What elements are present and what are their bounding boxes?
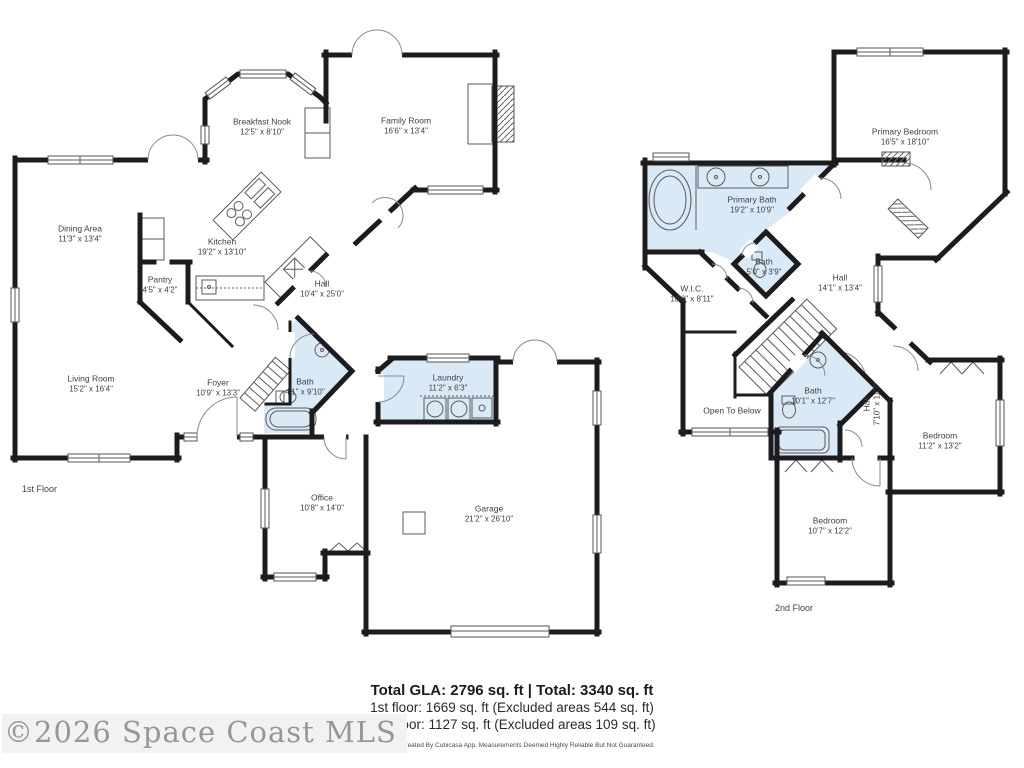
room-label-bath-1f: Bath 4'1" x 9'10" (285, 376, 324, 397)
hatched-window-icon (882, 152, 910, 166)
room-label-breakfast-nook: Breakfast Nook 12'5" x 8'10" (233, 116, 291, 137)
room-label-family-room: Family Room 16'6" x 13'4" (381, 115, 431, 136)
total-gla-line: Total GLA: 2796 sq. ft | Total: 3340 sq.… (0, 681, 1024, 700)
room-label-garage: Garage 21'2" x 26'10" (465, 503, 513, 524)
room-label-primary-bedroom: Primary Bedroom 16'5" x 18'10" (872, 126, 938, 147)
room-label-hall-1f: Hall 10'4" x 25'0" (300, 278, 344, 299)
room-label-office: Office 10'8" x 14'0" (300, 492, 344, 513)
kitchen-island-icon (213, 172, 281, 240)
first-floor-tag: 1st Floor (22, 484, 57, 494)
bifold-door-icon (940, 362, 984, 374)
water-heater-icon (403, 512, 425, 534)
floorplan-page: Breakfast Nook 12'5" x 8'10" Family Room… (0, 0, 1024, 768)
bifold-door-icon (785, 460, 833, 472)
room-label-bath-2f: Bath 10'1" x 12'7" (791, 385, 835, 406)
first-floor-plan (11, 30, 601, 637)
window-icon (653, 48, 1004, 585)
mls-watermark: ©2026 Space Coast MLS (2, 714, 407, 753)
room-label-bedroom-1: Bedroom 11'2" x 13'2" (918, 430, 961, 451)
room-label-bedroom-2: Bedroom 10'7" x 12'2" (808, 515, 852, 536)
room-label-dining-area: Dining Area 11'3" x 13'4" (58, 223, 102, 244)
room-label-living-room: Living Room 15'2" x 16'4" (67, 373, 114, 394)
room-label-open-to-below: Open To Below (703, 405, 761, 416)
garage-door-icon (451, 626, 549, 637)
room-label-primary-bath: Primary Bath 19'2" x 10'9" (727, 194, 776, 215)
room-label-hall-2f: Hall 14'1" x 13'4" (818, 272, 862, 293)
room-label-bath-small: Bath 5'0" x 3'9" (747, 256, 782, 277)
hatched-window-icon (888, 199, 928, 238)
room-label-kitchen: Kitchen 19'2" x 13'10" (198, 236, 246, 257)
second-floor-tag: 2nd Floor (775, 603, 813, 613)
room-label-foyer: Foyer 10'9" x 13'3" (196, 377, 240, 398)
fireplace-icon (468, 84, 494, 144)
second-floor-plan (643, 48, 1007, 585)
room-label-wic: W.I.C. 10'6" x 8'11" (670, 283, 713, 304)
room-label-hall-strip: Hall 7'10" x 11'7" (861, 382, 882, 425)
room-label-laundry: Laundry 11'2" x 6'3" (429, 372, 468, 393)
bifold-door-icon (330, 543, 366, 551)
room-label-pantry: Pantry 4'5" x 4'2" (143, 274, 178, 295)
